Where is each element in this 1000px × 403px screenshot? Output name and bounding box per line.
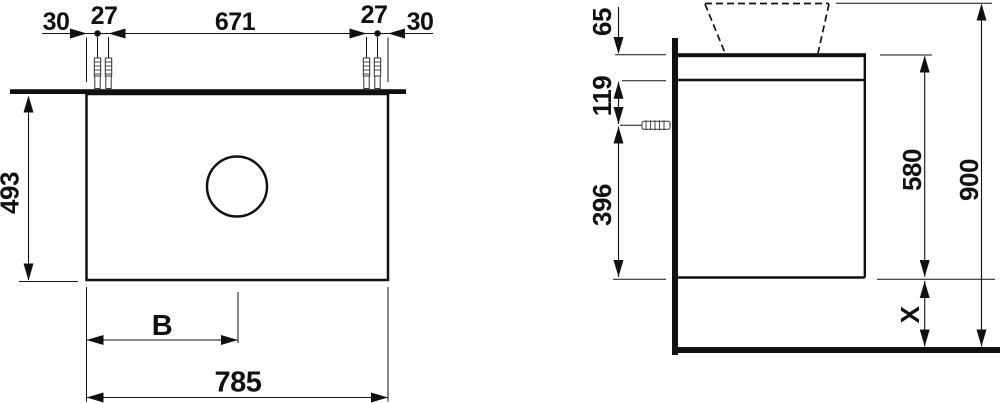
arrowhead <box>24 96 34 113</box>
wall-line <box>672 38 678 355</box>
dim-label-900: 900 <box>954 159 984 201</box>
dimension-119: 119 <box>587 76 666 124</box>
arrowhead <box>977 4 987 21</box>
dim-label-119: 119 <box>587 76 617 116</box>
arrowhead <box>388 29 405 39</box>
dimension-X: X <box>895 281 930 347</box>
mounting-screw-2 <box>105 37 112 89</box>
dim-label-30-right: 30 <box>407 8 434 36</box>
dimension-hole-offset-B: B <box>87 292 239 345</box>
basin-right-side <box>818 4 829 53</box>
dimension-height-493: 493 <box>0 96 78 282</box>
dim-label-65: 65 <box>587 8 617 36</box>
washbasin-dashed-outline <box>705 4 829 54</box>
mounting-screw-1 <box>94 37 101 89</box>
basin-hole-circle <box>207 157 267 217</box>
arrowhead <box>87 393 104 403</box>
technical-drawing-page: 30 27 671 27 30 493 B <box>0 0 1000 403</box>
arrowhead <box>221 335 238 345</box>
countertop-edge-line <box>678 53 866 57</box>
dimension-580: 580 <box>880 55 932 277</box>
arrowhead <box>920 330 930 347</box>
arrowhead <box>87 335 104 345</box>
front-view: 30 27 671 27 30 493 B <box>0 1 433 403</box>
mounting-screw-3 <box>363 37 370 89</box>
arrowhead <box>920 281 930 298</box>
floor-line <box>672 347 1000 353</box>
dim-label-27-right: 27 <box>361 1 388 29</box>
mounting-screw-4 <box>374 37 381 89</box>
arrowhead <box>70 29 87 39</box>
basin-left-side <box>705 4 725 53</box>
arrowhead <box>371 393 388 403</box>
arrowhead <box>977 330 987 347</box>
dim-label-B: B <box>152 310 172 342</box>
screw-position-dot <box>374 30 380 36</box>
dim-label-493: 493 <box>0 172 25 214</box>
arrowhead <box>920 56 930 73</box>
dim-label-671: 671 <box>215 8 256 36</box>
screw-position-dot <box>94 30 100 36</box>
dimension-396: 396 <box>587 127 666 280</box>
arrowhead <box>109 29 126 39</box>
dim-label-X: X <box>895 305 925 323</box>
arrowhead <box>614 127 624 144</box>
dim-label-785: 785 <box>215 367 262 399</box>
arrowhead <box>24 264 34 281</box>
arrowhead <box>614 260 624 277</box>
dim-label-396: 396 <box>587 184 617 226</box>
dim-label-30-left: 30 <box>43 8 70 36</box>
dim-label-27-left: 27 <box>91 2 118 30</box>
wall-anchor-screw <box>620 120 670 130</box>
arrowhead <box>920 260 930 277</box>
arrowhead <box>350 29 367 39</box>
dimension-width-785: 785 <box>87 287 389 403</box>
side-view: 65 119 396 580 <box>587 3 1000 355</box>
drawing-canvas: 30 27 671 27 30 493 B <box>0 0 1000 403</box>
arrowhead <box>614 37 624 54</box>
dim-label-580: 580 <box>897 149 927 191</box>
dimension-65: 65 <box>587 7 666 55</box>
cabinet-body-outline <box>87 94 389 280</box>
